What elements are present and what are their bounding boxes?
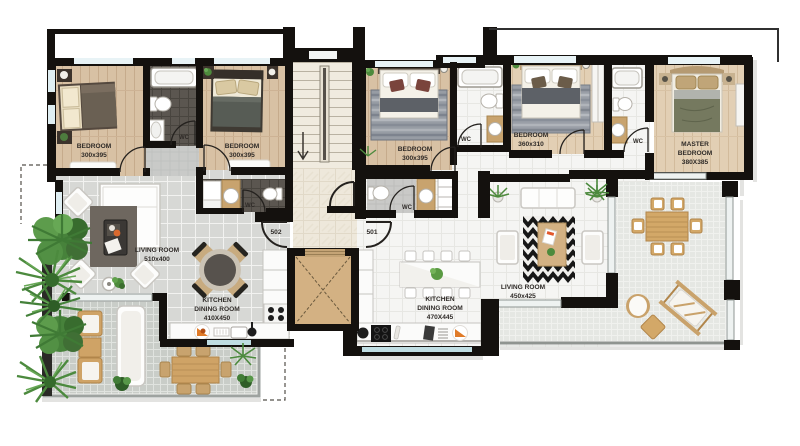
- svg-text:360x310: 360x310: [518, 141, 544, 148]
- svg-text:KITCHEN: KITCHEN: [425, 296, 455, 303]
- svg-text:WC: WC: [245, 203, 256, 209]
- svg-text:450x425: 450x425: [510, 293, 536, 300]
- svg-text:WC: WC: [633, 139, 644, 145]
- svg-text:MASTER: MASTER: [681, 141, 709, 148]
- svg-text:470X445: 470X445: [427, 314, 454, 321]
- svg-text:BEDROOM: BEDROOM: [225, 143, 260, 150]
- svg-text:WC: WC: [402, 205, 413, 211]
- svg-text:BEDROOM: BEDROOM: [77, 143, 112, 150]
- svg-text:300x395: 300x395: [229, 152, 255, 159]
- svg-text:KITCHEN: KITCHEN: [202, 297, 232, 304]
- svg-text:WC: WC: [461, 137, 472, 143]
- svg-text:BEDROOM: BEDROOM: [514, 132, 549, 139]
- svg-text:501: 501: [366, 229, 377, 236]
- svg-text:300x395: 300x395: [81, 152, 107, 159]
- svg-text:LIVING ROOM: LIVING ROOM: [135, 247, 180, 254]
- svg-text:380X385: 380X385: [682, 159, 709, 166]
- svg-text:502: 502: [270, 229, 281, 236]
- svg-text:BEDROOM: BEDROOM: [678, 150, 713, 157]
- svg-text:410X450: 410X450: [204, 315, 231, 322]
- svg-text:300x395: 300x395: [402, 155, 428, 162]
- svg-text:LIVING ROOM: LIVING ROOM: [501, 284, 546, 291]
- svg-text:510x400: 510x400: [144, 256, 170, 263]
- svg-text:BEDROOM: BEDROOM: [398, 146, 433, 153]
- svg-text:DINING ROOM: DINING ROOM: [194, 306, 240, 313]
- svg-text:DINING ROOM: DINING ROOM: [417, 305, 463, 312]
- svg-text:WC: WC: [179, 135, 190, 141]
